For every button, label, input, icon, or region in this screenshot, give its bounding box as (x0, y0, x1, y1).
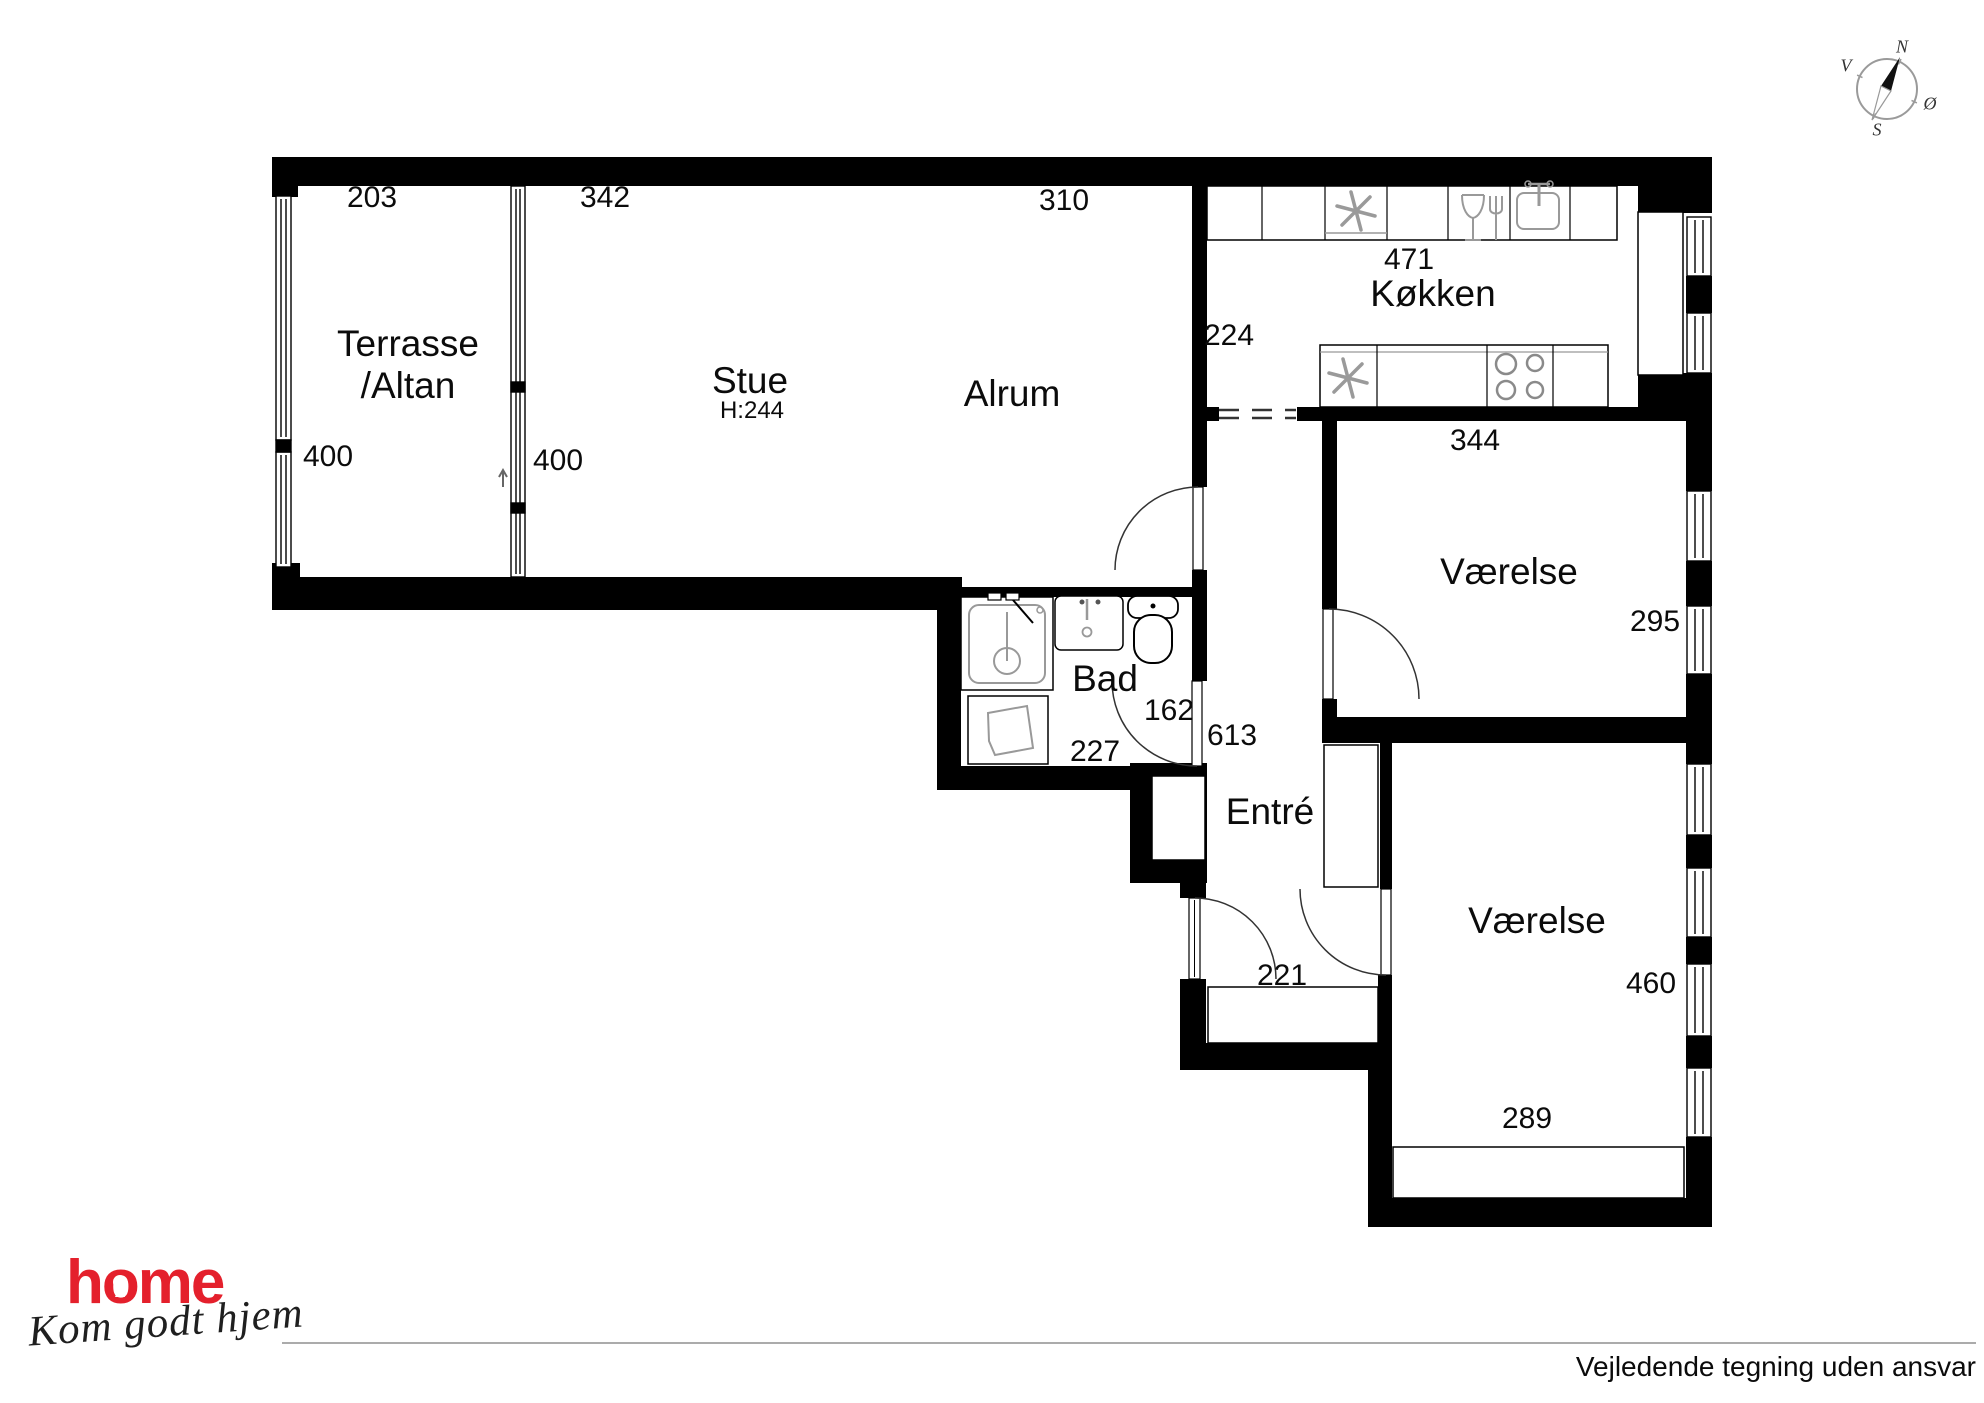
footer-divider-line (282, 1342, 1976, 1344)
dim-kokken-length: 471 (1384, 243, 1434, 277)
door-vaerelse-syd (1300, 889, 1391, 975)
compass-needle-north (1881, 57, 1900, 91)
closet-entre-left (1152, 776, 1205, 860)
dim-vaerelse-nord-depth: 295 (1630, 605, 1680, 639)
dim-bad-door: 162 (1144, 694, 1194, 728)
kitchen-counter-bottom (1320, 345, 1608, 407)
opening-dashed-kitchen (1219, 410, 1296, 418)
label-vaerelse-syd: Værelse (1468, 900, 1606, 942)
door-alrum (1115, 487, 1203, 570)
window-room2-4 (1687, 1068, 1711, 1137)
compass-south-label: S (1873, 120, 1882, 141)
dim-entre-length: 613 (1207, 719, 1257, 753)
dim-stue-width: 342 (580, 181, 630, 215)
floor-plan-page: Terrasse /Altan 203 400 400 Stue H:244 3… (0, 0, 1984, 1403)
kitchen-counter-right (1638, 212, 1683, 375)
window-terrace-left-lower (276, 452, 291, 567)
compass-needle-south (1872, 86, 1891, 120)
window-room1-2 (1687, 606, 1711, 674)
dim-alrum-width: 310 (1039, 184, 1089, 218)
dim-terrasse-height-left: 400 (303, 440, 353, 474)
keyhole-icon (113, 1275, 127, 1289)
label-entre: Entré (1226, 791, 1314, 833)
label-terrasse: Terrasse /Altan (337, 323, 479, 407)
hand-basin-icon (1055, 596, 1123, 650)
dim-terrasse-height-right: 400 (533, 444, 583, 478)
washing-machine-icon (968, 696, 1048, 764)
window-kitchen-2 (1687, 313, 1711, 373)
dim-vaerelse-syd-depth: 460 (1626, 967, 1676, 1001)
closet-entre-tall (1324, 745, 1378, 887)
floor-plan-drawing (0, 0, 1984, 1403)
compass-north-label: N (1896, 37, 1908, 58)
window-terrace-left-upper (276, 196, 291, 440)
dim-vaerelse-syd-width: 289 (1502, 1102, 1552, 1136)
door-vaerelse-nord (1323, 609, 1419, 699)
closet-vaerelse-syd (1393, 1147, 1684, 1198)
window-room2-3 (1687, 964, 1711, 1036)
compass-west-label: V (1841, 56, 1852, 77)
window-room1-1 (1687, 491, 1711, 561)
disclaimer-text: Vejledende tegning uden ansvar (1576, 1351, 1976, 1383)
label-stue: Stue (712, 360, 788, 402)
closet-entre-bottom (1208, 987, 1378, 1043)
toilet-icon (1128, 596, 1178, 663)
walls (272, 157, 1712, 1227)
window-room2-1 (1687, 764, 1711, 835)
dim-kokken-opening: 224 (1204, 319, 1254, 353)
compass-icon (1857, 57, 1917, 120)
dim-bad-width: 227 (1070, 735, 1120, 769)
dim-vaerelse-nord-width: 344 (1450, 424, 1500, 458)
terrace-door-arrow (499, 470, 507, 487)
window-kitchen-1 (1687, 217, 1711, 276)
shower-icon (961, 593, 1053, 690)
label-bad: Bad (1072, 658, 1138, 700)
label-alrum: Alrum (964, 373, 1061, 415)
dim-terrasse-width: 203 (347, 181, 397, 215)
compass-east-label: Ø (1924, 94, 1937, 115)
dim-entre-width: 221 (1257, 959, 1307, 993)
label-stue-ceiling: H:244 (720, 397, 784, 425)
label-vaerelse-nord: Værelse (1440, 551, 1578, 593)
window-room2-2 (1687, 868, 1711, 937)
label-kokken: Køkken (1370, 273, 1495, 315)
